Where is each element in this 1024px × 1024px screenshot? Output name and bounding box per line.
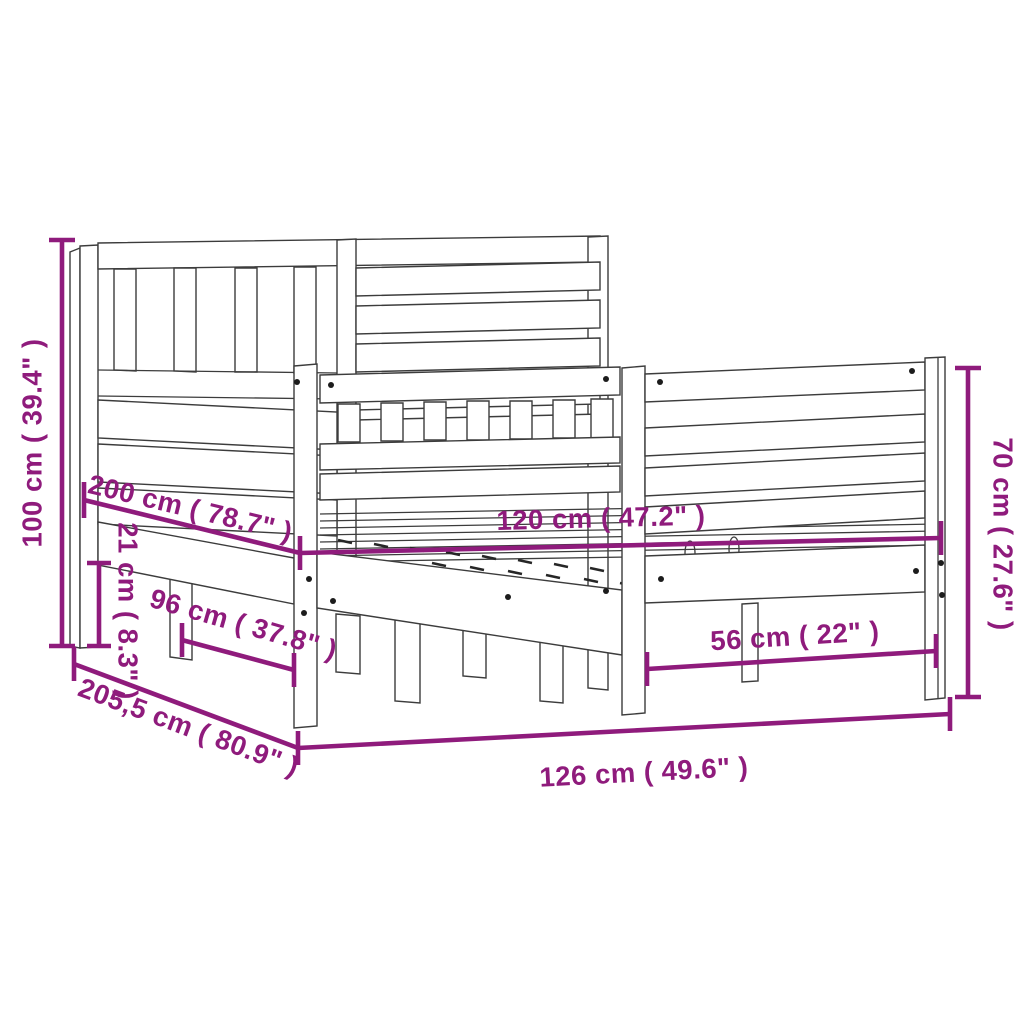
dimension-footboard-leg-span: 56 cm ( 22" ) — [647, 615, 936, 686]
dimension-footboard-height: 70 cm ( 27.6" ) — [955, 368, 1019, 697]
dimension-total-length: 205,5 cm ( 80.9" ) — [74, 647, 303, 782]
corner-post — [294, 364, 317, 728]
dimension-label-headboard-height: 100 cm ( 39.4" ) — [16, 338, 47, 547]
dimension-label-mattress-width: 120 cm ( 47.2" ) — [496, 500, 706, 536]
dimension-label-total-width: 126 cm ( 49.6" ) — [539, 751, 749, 793]
product-dimension-image: 100 cm ( 39.4" ) 200 cm ( 78.7" ) 120 cm… — [0, 0, 1024, 1024]
dimension-headboard-height: 100 cm ( 39.4" ) — [16, 240, 75, 646]
dimension-label-footboard-leg-span: 56 cm ( 22" ) — [709, 615, 880, 656]
footboard-left-post — [622, 366, 645, 715]
dimension-label-under-bed-clearance: 21 cm ( 8.3" ) — [113, 522, 144, 699]
dimension-label-footboard-height: 70 cm ( 27.6" ) — [988, 437, 1019, 630]
bed-frame-diagram: 100 cm ( 39.4" ) 200 cm ( 78.7" ) 120 cm… — [0, 0, 1024, 1024]
dimension-label-total-length: 205,5 cm ( 80.9" ) — [74, 672, 303, 783]
